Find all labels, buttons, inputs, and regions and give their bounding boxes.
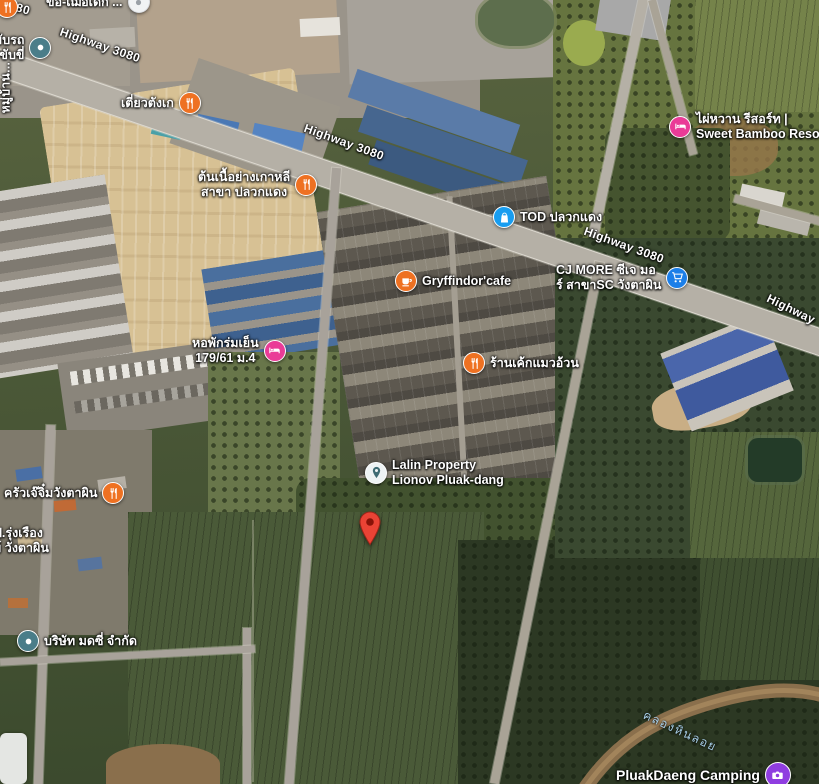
satellite-map[interactable]: Highway 3080 Highway 3080 Highway 3080 H… (0, 0, 819, 784)
poi-label: ขอ-เฌอเด็ก ... (46, 0, 123, 9)
poi-camping[interactable]: PluakDaeng Camping (616, 762, 791, 784)
place-dot-icon (29, 37, 51, 59)
poi-label: หอพักร่มเย็น (192, 336, 259, 351)
shopping-bag-icon (493, 206, 515, 228)
poi-korean-bbq[interactable]: ต้นเนื้อย่างเกาหลี สาขา ปลวกแดง (198, 170, 317, 200)
poi-label: ครัวเจ๊จิ๋มวังตาผิน (4, 486, 97, 501)
poi-label: TOD ปลวกแดง (520, 210, 602, 225)
poi-dormitory[interactable]: หอพักร่มเย็น 179/61 ม.4 (192, 336, 286, 366)
village-name-label: หมู่บ้าน... (0, 56, 16, 120)
poi-label: CJ MORE ซีเจ มอ (556, 263, 661, 278)
place-pin-icon (365, 462, 387, 484)
poi-label: สอนขับรถ (0, 33, 24, 48)
poi-label: 179/61 ม.4 (195, 351, 255, 366)
poi-label: สาขา ปลวกแดง (201, 185, 287, 200)
restaurant-icon (463, 352, 485, 374)
poi-label: ต้นเนื้อย่างเกาหลี (198, 170, 290, 185)
poi-lalin-property[interactable]: Lalin Property Lionov Pluak-dang (365, 458, 504, 488)
poi-sweet-bamboo-resort[interactable]: ไผ่หวาน รีสอร์ท | Sweet Bamboo Resort | (669, 112, 819, 142)
lodging-icon (669, 116, 691, 138)
poi-cj-more[interactable]: CJ MORE ซีเจ มอ ร์ สาขาSC วังตาผิน (556, 263, 688, 293)
place-dot-icon (17, 630, 39, 652)
cafe-icon (395, 270, 417, 292)
poi-top-partial[interactable]: ขอ-เฌอเด็ก ... (46, 0, 150, 13)
poi-label: Gryffindor'cafe (422, 274, 511, 289)
poi-label: Lalin Property (392, 458, 504, 473)
poi-label: ป.รุ่งเรือง (0, 526, 49, 541)
poi-tiaw-tangke[interactable]: เตี่ยวตังเก (121, 92, 201, 114)
white-circle-icon (128, 0, 150, 13)
restaurant-icon (102, 482, 124, 504)
poi-kitchen[interactable]: ครัวเจ๊จิ๋มวังตาผิน (4, 482, 124, 504)
poi-company[interactable]: บริษัท มดซี่ จำกัด (17, 630, 137, 652)
poi-label: ร์ สาขาSC วังตาผิน (556, 278, 661, 293)
lodging-icon (264, 340, 286, 362)
poi-rungrueang[interactable]: ป.รุ่งเรือง ย์ วังตาผิน (0, 526, 49, 556)
poi-label: บริษัท มดซี่ จำกัด (44, 634, 137, 649)
shopping-cart-icon (666, 267, 688, 289)
poi-label: ไผ่หวาน รีสอร์ท | (696, 112, 819, 127)
camera-icon (765, 762, 791, 784)
poi-label: ร้านเค้กแมวอ้วน (490, 356, 579, 371)
restaurant-icon (0, 0, 18, 18)
poi-cake-shop[interactable]: ร้านเค้กแมวอ้วน (463, 352, 579, 374)
poi-label: PluakDaeng Camping (616, 767, 760, 784)
poi-tod[interactable]: TOD ปลวกแดง (493, 206, 602, 228)
poi-corner-restaurant[interactable] (0, 0, 18, 18)
restaurant-icon (295, 174, 317, 196)
poi-gryffindor-cafe[interactable]: Gryffindor'cafe (395, 270, 511, 292)
poi-label: เตี่ยวตังเก (121, 96, 174, 111)
poi-label: Sweet Bamboo Resort | (696, 127, 819, 142)
poi-label: Lionov Pluak-dang (392, 473, 504, 488)
red-destination-pin[interactable] (358, 511, 382, 551)
restaurant-icon (179, 92, 201, 114)
poi-label: ย์ วังตาผิน (0, 541, 49, 556)
